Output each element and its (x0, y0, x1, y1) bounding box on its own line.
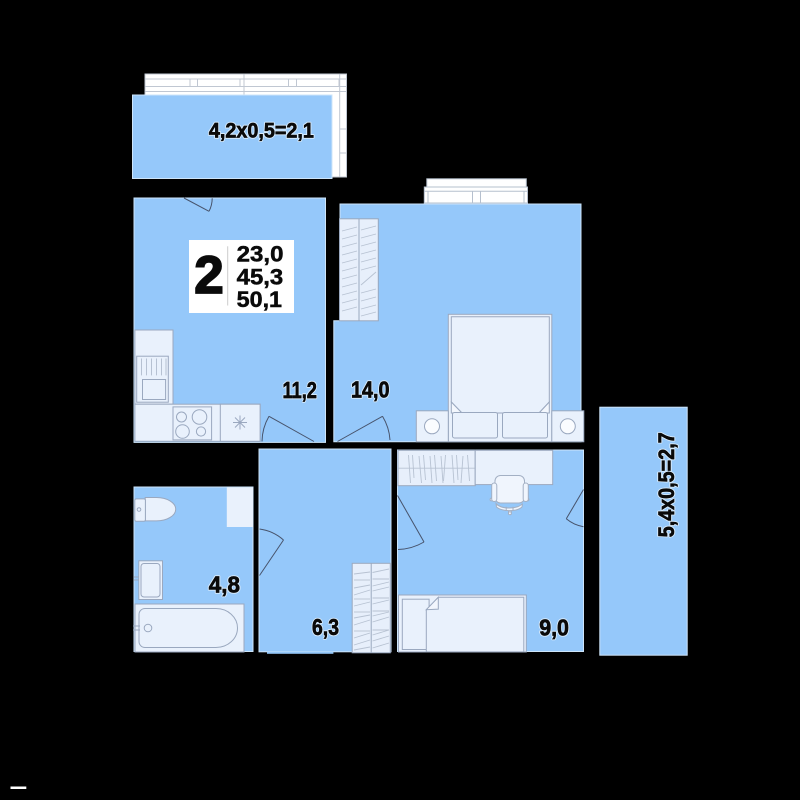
svg-text:2: 2 (194, 246, 223, 305)
svg-text:11,2: 11,2 (283, 377, 317, 403)
svg-text:4,2x0,5=2,1: 4,2x0,5=2,1 (209, 119, 314, 143)
svg-text:4,8: 4,8 (209, 572, 240, 598)
svg-text:9,0: 9,0 (539, 615, 569, 641)
svg-text:6,3: 6,3 (312, 614, 339, 640)
svg-text:50,1: 50,1 (237, 287, 282, 312)
svg-text:5,4x0,5=2,7: 5,4x0,5=2,7 (654, 432, 679, 537)
svg-text:23,0: 23,0 (237, 241, 284, 266)
svg-text:45,3: 45,3 (237, 265, 283, 290)
svg-text:14,0: 14,0 (351, 377, 390, 403)
